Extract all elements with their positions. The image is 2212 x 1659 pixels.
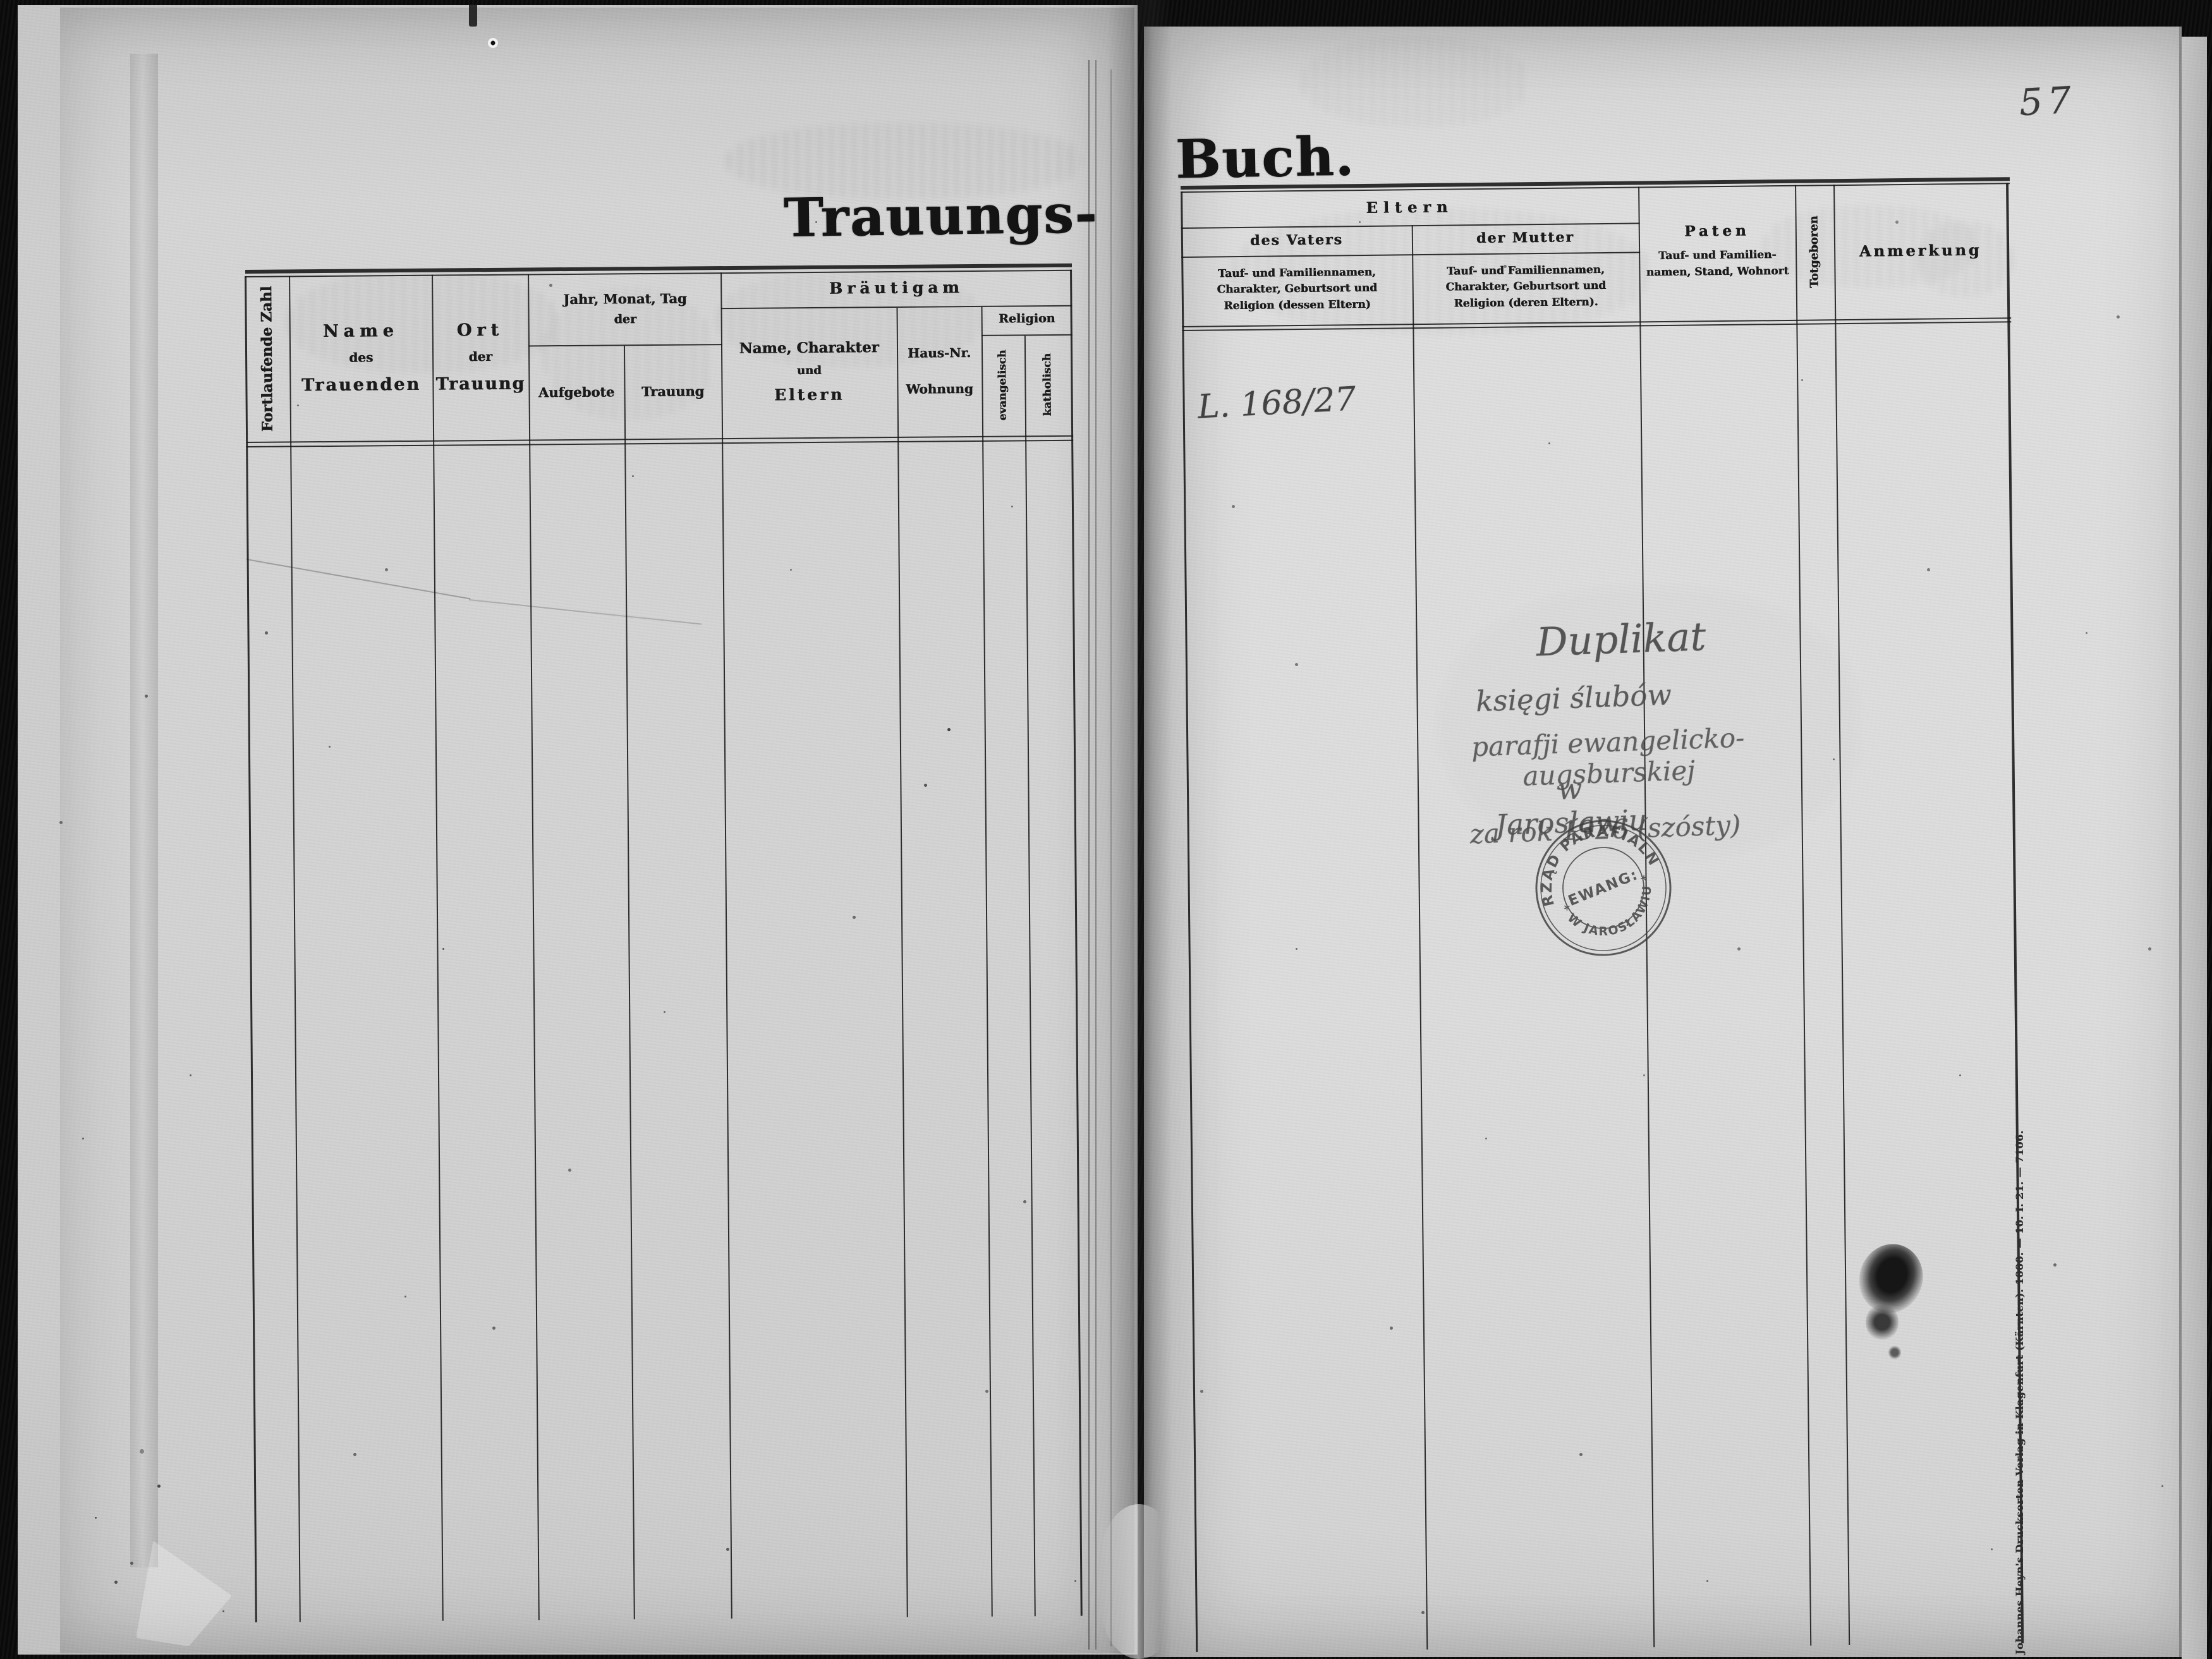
header-line: Wohnung <box>906 382 973 397</box>
handwritten-note-line: Duplikat <box>1513 612 1729 666</box>
header-banns: Aufgebote <box>528 347 624 438</box>
left-table: Fortlaufende Zahl Name des Trauenden Ort… <box>245 264 1083 1624</box>
column-line <box>289 276 301 1622</box>
header-line: Name, Charakter <box>739 339 878 357</box>
header-officiant-name: Name des Trauenden <box>289 276 433 441</box>
left-page-edge-line <box>1095 60 1097 1650</box>
header-religion-catholic: katholisch <box>1024 336 1071 435</box>
header-line: Charakter, Geburtsort und <box>1445 280 1606 294</box>
top-edge-notch <box>469 4 477 27</box>
header-line: der <box>614 313 636 327</box>
header-line: Religion (dessen Eltern) <box>1224 299 1370 313</box>
header-line: evangelisch <box>997 350 1009 421</box>
column-line <box>1795 185 1811 1646</box>
header-line: katholisch <box>1042 353 1054 416</box>
header-line: des <box>349 350 373 365</box>
gutter-page-curl <box>1101 1504 1177 1659</box>
column-line <box>1024 336 1036 1616</box>
header-groom-name: Name, Charakter und Eltern <box>721 308 898 437</box>
right-page-title: Buch. <box>1175 125 1355 191</box>
column-line <box>720 272 732 1619</box>
header-line: Tauf- und Familiennamen, <box>1447 264 1605 278</box>
header-line: Religion (deren Eltern). <box>1454 296 1598 310</box>
column-line <box>1412 225 1428 1650</box>
stamp-center-text: EWANG: <box>1566 866 1641 909</box>
column-line <box>432 275 444 1621</box>
header-remark: Anmerkung <box>1833 185 2007 317</box>
header-line: Totgeboren <box>1808 216 1822 288</box>
header-father-desc: Tauf- und Familiennamen, Charakter, Gebu… <box>1184 257 1410 322</box>
header-mother: der Mutter <box>1412 224 1639 253</box>
right-edge-sheet <box>2182 37 2207 1659</box>
header-place: Ort der Trauung <box>432 275 529 439</box>
header-serial-number: Fortlaufende Zahl <box>245 277 290 441</box>
header-line: Jahr, Monat, Tag <box>563 291 687 307</box>
left-margin-fold <box>130 54 158 1567</box>
ink-ghost-smear <box>1302 38 1529 126</box>
header-serial-label: Fortlaufende Zahl <box>258 286 276 432</box>
printer-imprint: Johannes Heyn's Drucksorten-Verlag in Kl… <box>2014 1204 2027 1655</box>
paper-hole-speck <box>488 38 498 48</box>
header-line: und <box>797 364 822 377</box>
header-line: Name <box>323 322 399 342</box>
header-line: Charakter, Geburtsort und <box>1217 283 1377 296</box>
header-line: namen, Stand, Wohnort <box>1646 265 1789 279</box>
header-line: Haus-Nr. <box>908 346 971 361</box>
header-father: des Vaters <box>1181 226 1412 255</box>
left-page-edge-line <box>1110 70 1112 1646</box>
scanned-register-spread: Trauungs- Buch. Fortlaufende Zahl Name d… <box>0 0 2212 1659</box>
handwritten-note-line: księgi ślubów <box>1472 678 1675 718</box>
header-mother-desc: Tauf- und Familiennamen, Charakter, Gebu… <box>1414 254 1637 320</box>
header-house-number: Haus-Nr. Wohnung <box>897 307 983 435</box>
header-line: Paten <box>1684 223 1750 241</box>
header-godparents: Paten Tauf- und Familien- namen, Stand, … <box>1638 198 1796 314</box>
header-line: der <box>468 349 492 363</box>
header-date-group: Jahr, Monat, Tag der <box>528 274 722 344</box>
header-religion: Religion <box>981 305 1072 334</box>
handwritten-page-number: 57 <box>2018 78 2077 125</box>
header-parents-group: Eltern <box>1181 188 1639 226</box>
header-line: Trauenden <box>301 374 421 395</box>
page-gutter-shadow <box>1107 0 1183 1659</box>
header-groom-group: Bräutigam <box>720 270 1072 307</box>
column-line <box>528 274 540 1620</box>
header-line: Trauung <box>435 374 525 394</box>
header-line: Tauf- und Familien- <box>1658 250 1777 263</box>
header-line: Eltern <box>774 386 845 405</box>
left-page-title: Trauungs- <box>783 183 1062 249</box>
ink-blob <box>1866 1303 1899 1341</box>
header-wedding: Trauung <box>624 346 722 437</box>
header-line: Tauf- und Familiennamen, <box>1218 266 1376 280</box>
header-religion-protestant: evangelisch <box>981 336 1025 435</box>
ink-blob <box>1888 1345 1901 1360</box>
column-line <box>897 308 908 1617</box>
left-page-edge-line <box>1088 60 1090 1650</box>
column-line <box>1833 185 1850 1645</box>
header-line: Ort <box>457 320 504 341</box>
dust-specks <box>0 0 2 2</box>
column-line <box>624 346 635 1619</box>
column-line <box>981 307 992 1617</box>
header-stillborn: Totgeboren <box>1795 186 1835 317</box>
